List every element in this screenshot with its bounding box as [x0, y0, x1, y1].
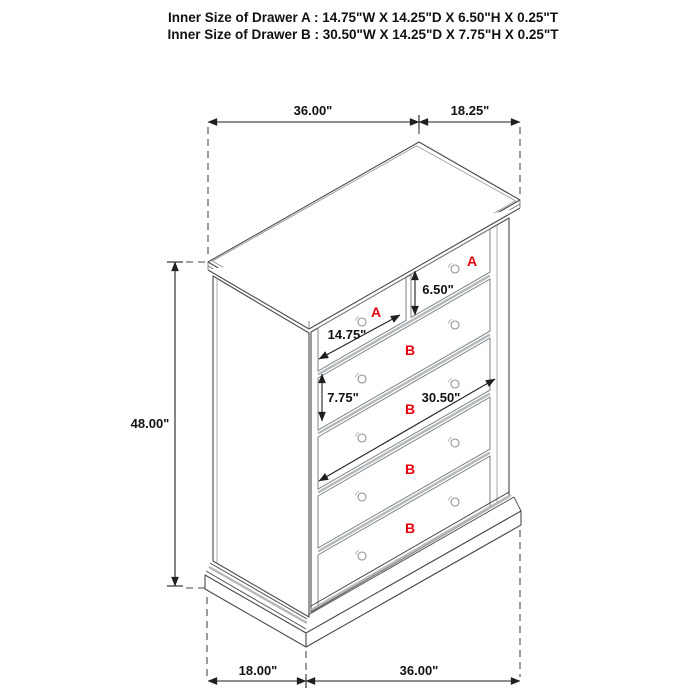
header-line-1: Inner Size of Drawer A : 14.75"W X 14.25… — [168, 10, 559, 25]
header: Inner Size of Drawer A : 14.75"W X 14.25… — [167, 10, 559, 42]
top-depth-dimension-label: 18.25" — [451, 103, 490, 118]
drawer-b-height-label: 7.75" — [327, 390, 358, 405]
drawer-a-width-label: 14.75" — [328, 327, 367, 342]
dresser-dimension-diagram: Inner Size of Drawer A : 14.75"W X 14.25… — [0, 0, 700, 700]
drawer-b3-label: B — [405, 461, 415, 477]
bottom-depth-dimension-label: 18.00" — [239, 663, 278, 678]
height-dimension-label: 48.00" — [131, 416, 170, 431]
drawer-b2-label: B — [405, 401, 415, 417]
drawer-a-right-label: A — [467, 253, 477, 269]
drawer-b1-label: B — [405, 342, 415, 358]
header-line-2: Inner Size of Drawer B : 30.50"W X 14.25… — [167, 27, 559, 42]
drawer-a-left-label: A — [371, 304, 381, 320]
diagram-canvas: Inner Size of Drawer A : 14.75"W X 14.25… — [0, 0, 700, 700]
dresser-left-panel — [213, 276, 309, 617]
drawer-a-height-label: 6.50" — [422, 282, 453, 297]
top-width-dimension-label: 36.00" — [294, 103, 333, 118]
bottom-width-dimension-label: 36.00" — [400, 663, 439, 678]
drawer-b4-label: B — [405, 520, 415, 536]
drawer-b-width-label: 30.50" — [422, 390, 461, 405]
height-dimension-lines: 48.00" — [131, 262, 205, 588]
